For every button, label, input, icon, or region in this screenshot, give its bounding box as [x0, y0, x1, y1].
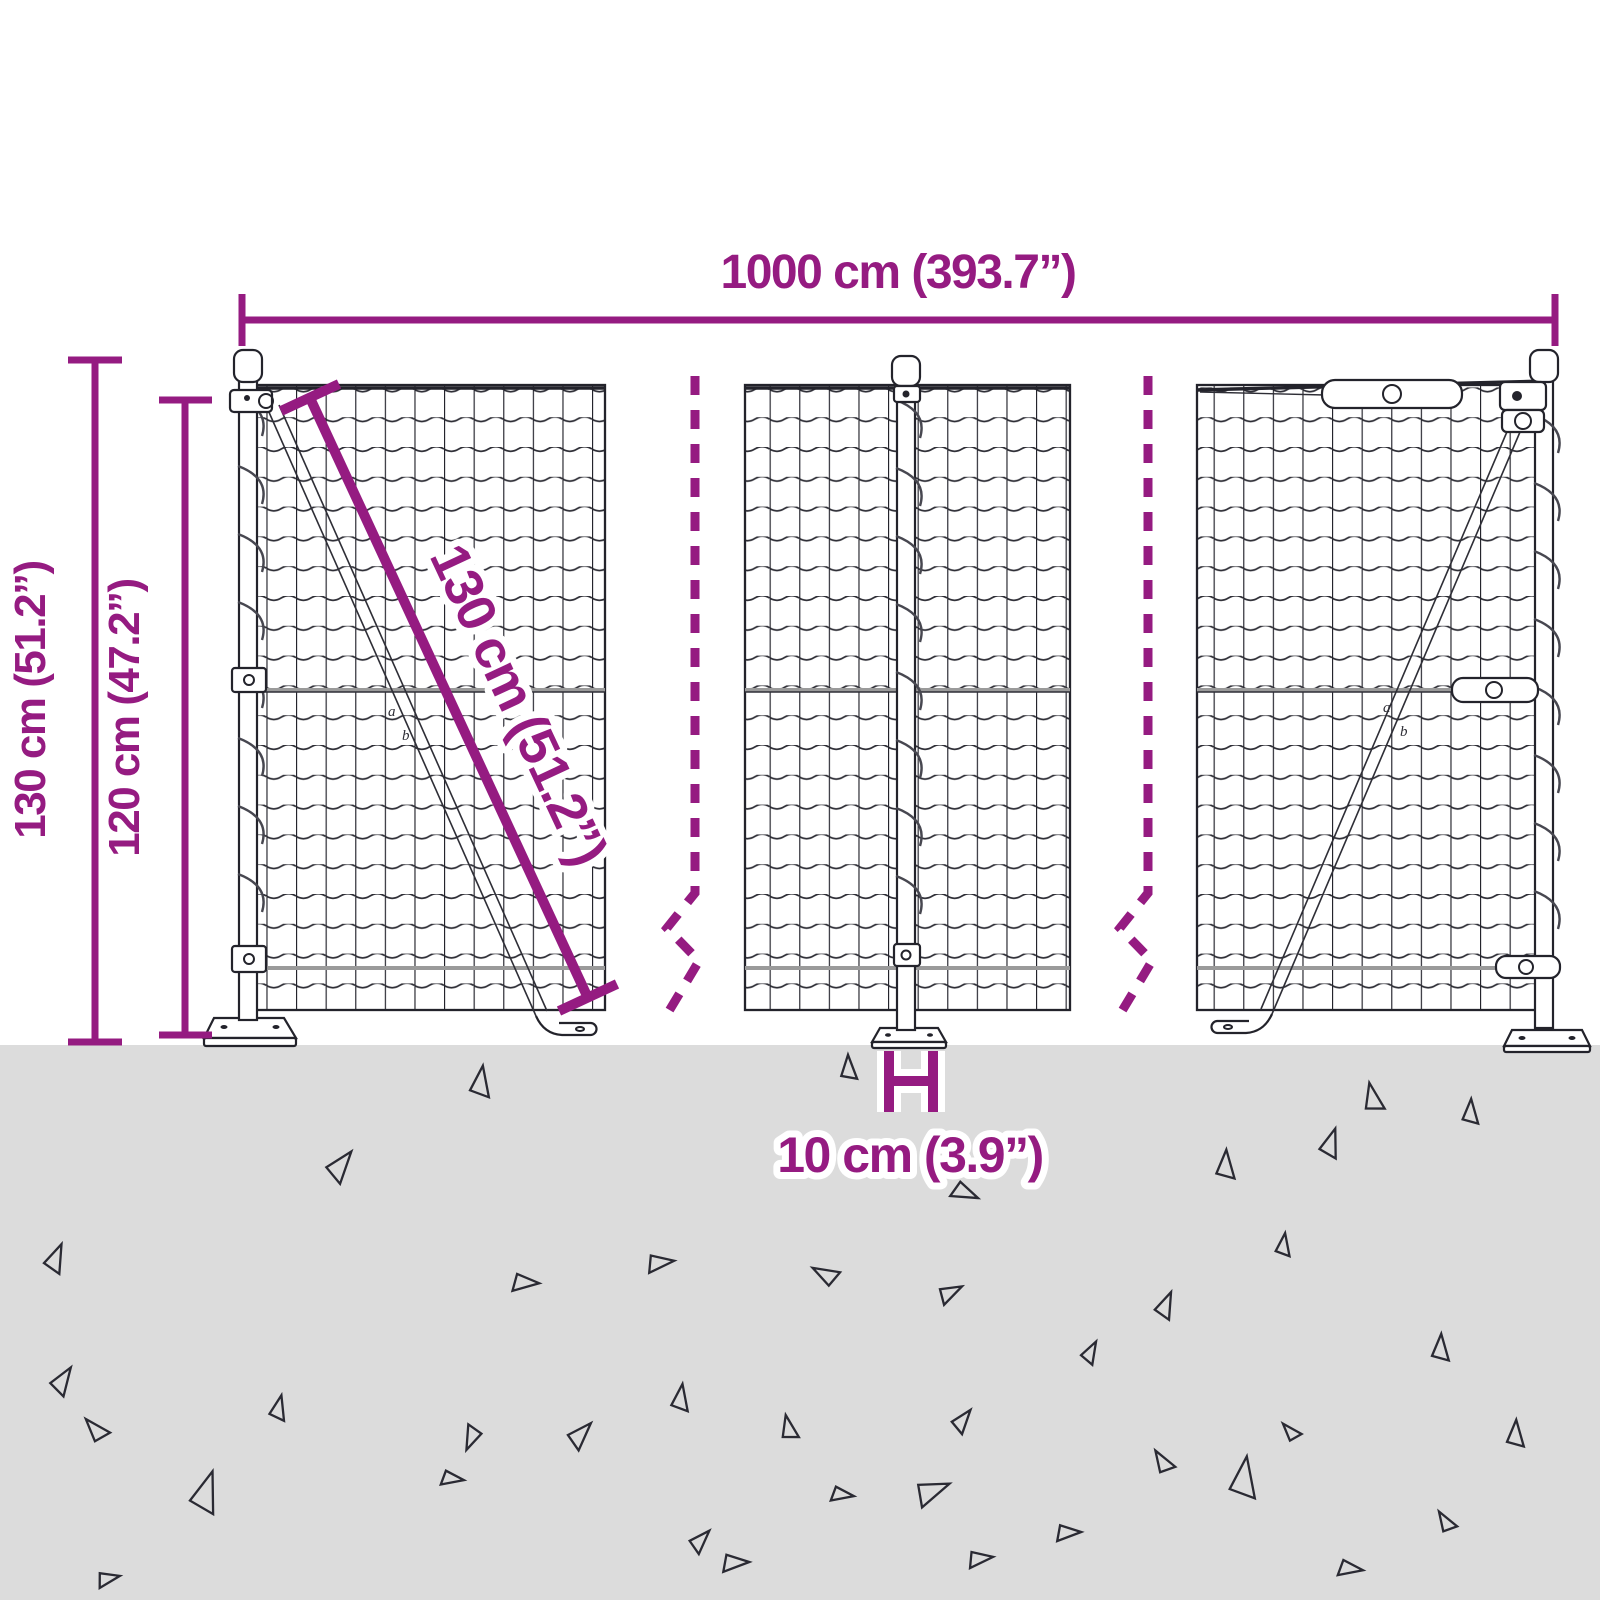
clamp-bracket: [1500, 382, 1546, 410]
post-body: [1535, 380, 1553, 1028]
post-spacing-dimension-label: 10 cm (3.9”): [777, 1127, 1042, 1183]
callout-a: a: [1383, 700, 1391, 716]
width-dimension: 1000 cm (393.7”): [242, 246, 1555, 346]
clamp-bracket: [894, 944, 920, 966]
brace-foot: [1211, 1014, 1272, 1033]
break-line-left: [666, 376, 699, 1016]
height-total-dimension-label: 130 cm (51.2”): [6, 561, 55, 838]
post-cap: [892, 356, 920, 386]
width-dimension-label: 1000 cm (393.7”): [721, 246, 1076, 299]
brace-foot: [536, 1016, 597, 1035]
diagram-canvas: a b a b 1000 cm (393.7”) 130 cm (51.2”) …: [0, 0, 1600, 1600]
clamp-bracket: [232, 668, 266, 692]
break-line-right: [1119, 376, 1152, 1016]
clamp-bracket: [232, 946, 266, 972]
post-body: [897, 384, 915, 1030]
fence-drawing: a b a b: [204, 350, 1590, 1052]
height-mesh-dimension-label: 120 cm (47.2”): [100, 579, 149, 856]
base-plate: [1504, 1030, 1590, 1046]
callout-b: b: [402, 728, 410, 744]
height-mesh-dimension: 120 cm (47.2”): [100, 400, 212, 1035]
product-dimension-diagram: a b a b 1000 cm (393.7”) 130 cm (51.2”) …: [0, 0, 1600, 1600]
callout-b: b: [1400, 724, 1408, 740]
post-cap: [234, 350, 262, 382]
callout-a: a: [388, 704, 396, 720]
post-cap: [1530, 350, 1558, 382]
